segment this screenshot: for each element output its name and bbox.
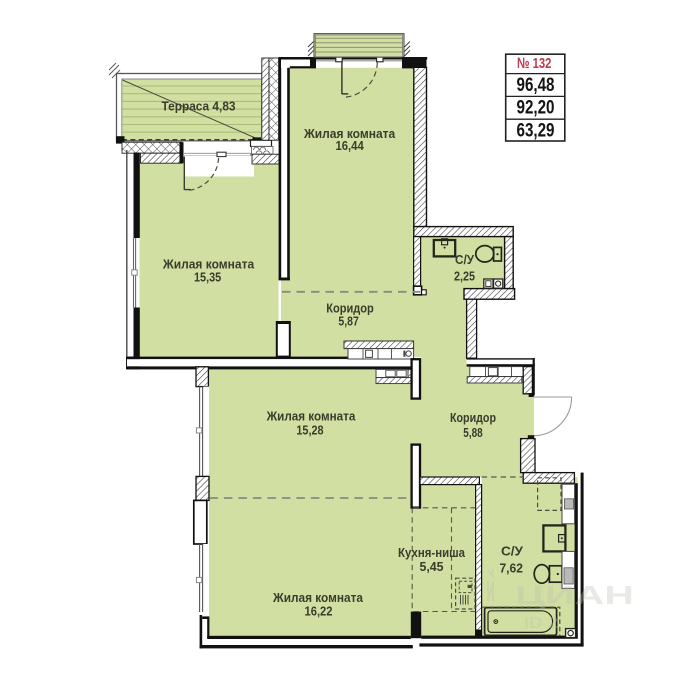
svg-text:7,62: 7,62 <box>499 561 523 576</box>
svg-text:С/У: С/У <box>455 252 475 267</box>
svg-text:Терраса 4,83: Терраса 4,83 <box>162 99 236 114</box>
svg-text:15,28: 15,28 <box>296 422 323 437</box>
svg-text:16,22: 16,22 <box>305 603 333 618</box>
svg-text:Жилая комната: Жилая комната <box>266 408 356 423</box>
svg-text:15,35: 15,35 <box>194 269 221 284</box>
svg-text:ЦИАН: ЦИАН <box>515 580 634 610</box>
svg-text:16,44: 16,44 <box>335 138 364 153</box>
svg-text:№ 132: № 132 <box>517 55 552 72</box>
svg-text:2,25: 2,25 <box>454 268 475 283</box>
svg-text:5,45: 5,45 <box>420 559 444 574</box>
svg-text:Кухня-ниша: Кухня-ниша <box>398 545 466 560</box>
svg-text:Коридор: Коридор <box>450 410 496 425</box>
svg-text:92,20: 92,20 <box>517 98 555 119</box>
svg-text:ID 2: ID 2 <box>524 615 558 632</box>
svg-text:96,48: 96,48 <box>517 75 555 96</box>
svg-text:С/У: С/У <box>501 543 524 558</box>
svg-text:63,29: 63,29 <box>517 120 555 141</box>
svg-text:5,87: 5,87 <box>338 313 358 328</box>
svg-text:5,88: 5,88 <box>463 425 482 440</box>
